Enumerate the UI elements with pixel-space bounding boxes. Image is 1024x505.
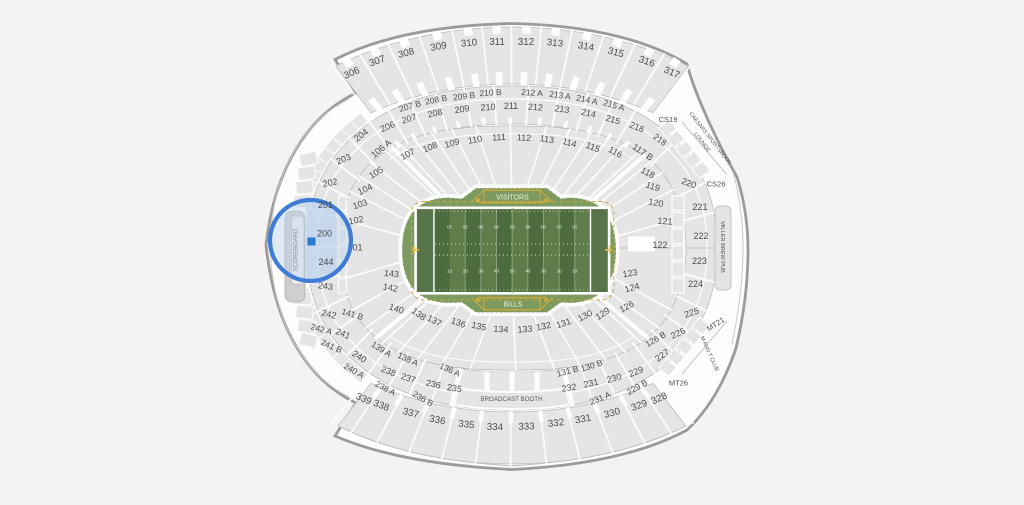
svg-text:MT26: MT26 <box>669 379 688 388</box>
svg-text:20: 20 <box>557 269 563 274</box>
svg-text:40: 40 <box>525 269 531 274</box>
svg-text:BILLS: BILLS <box>503 302 522 309</box>
svg-text:10: 10 <box>447 225 453 230</box>
svg-text:133: 133 <box>517 324 533 335</box>
svg-text:210: 210 <box>480 102 496 113</box>
svg-text:200: 200 <box>317 229 332 239</box>
svg-text:221: 221 <box>692 202 707 212</box>
svg-text:20: 20 <box>462 225 468 230</box>
svg-text:30: 30 <box>478 225 484 230</box>
svg-text:334: 334 <box>487 422 504 434</box>
svg-text:VISITORS: VISITORS <box>496 194 529 201</box>
svg-text:CS19: CS19 <box>659 115 678 124</box>
svg-text:40: 40 <box>525 225 531 230</box>
svg-text:30: 30 <box>478 269 484 274</box>
svg-text:143: 143 <box>383 268 399 280</box>
svg-text:121: 121 <box>657 216 673 227</box>
svg-text:312: 312 <box>518 37 534 48</box>
svg-text:BROADCAST BOOTH: BROADCAST BOOTH <box>480 396 542 403</box>
svg-text:50: 50 <box>510 269 516 274</box>
svg-text:313: 313 <box>546 37 564 50</box>
svg-text:111: 111 <box>492 132 506 143</box>
svg-text:40: 40 <box>494 225 500 230</box>
svg-text:244: 244 <box>318 257 333 267</box>
svg-text:MILLER BREW PUB: MILLER BREW PUB <box>719 221 725 273</box>
svg-text:224: 224 <box>688 279 703 289</box>
svg-text:112: 112 <box>517 132 532 143</box>
svg-text:40: 40 <box>494 269 500 274</box>
svg-text:50: 50 <box>509 225 515 230</box>
svg-text:210 B: 210 B <box>479 87 502 98</box>
svg-text:213: 213 <box>554 103 570 115</box>
svg-text:212 A: 212 A <box>521 87 544 98</box>
svg-text:223: 223 <box>692 256 707 266</box>
svg-text:CS26: CS26 <box>707 180 726 189</box>
svg-text:310: 310 <box>460 37 478 50</box>
svg-text:311: 311 <box>489 37 505 48</box>
svg-text:333: 333 <box>518 421 535 433</box>
svg-text:211: 211 <box>504 101 518 111</box>
svg-text:20: 20 <box>463 269 469 274</box>
svg-text:122: 122 <box>652 240 667 250</box>
svg-text:209: 209 <box>454 103 470 115</box>
svg-text:20: 20 <box>556 225 562 230</box>
svg-text:201: 201 <box>318 200 333 210</box>
svg-text:30: 30 <box>541 269 547 274</box>
svg-text:212: 212 <box>528 102 544 113</box>
svg-text:335: 335 <box>458 419 476 432</box>
svg-text:332: 332 <box>547 417 564 430</box>
svg-text:134: 134 <box>493 324 509 335</box>
svg-text:10: 10 <box>572 269 578 274</box>
svg-text:10: 10 <box>572 225 578 230</box>
svg-text:222: 222 <box>693 231 708 241</box>
svg-text:30: 30 <box>541 225 547 230</box>
svg-text:10: 10 <box>447 269 453 274</box>
